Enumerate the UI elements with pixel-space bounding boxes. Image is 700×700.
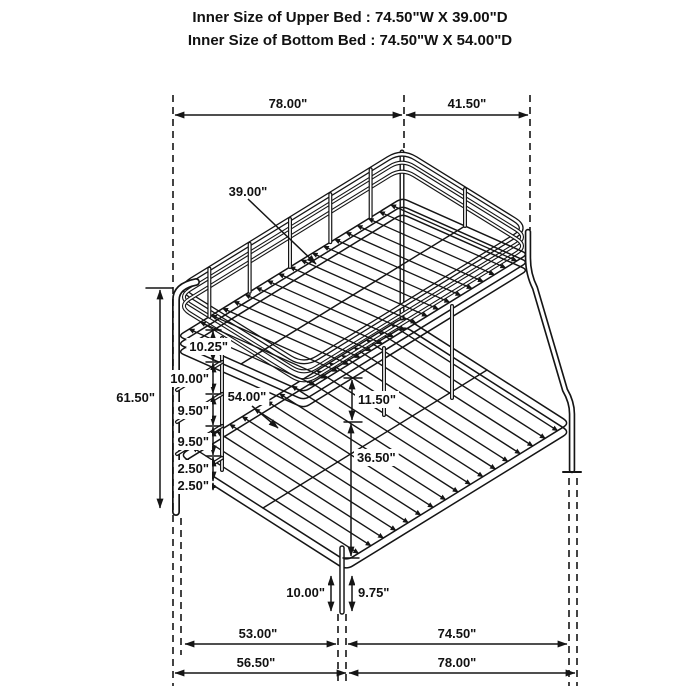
lower-bed-slat [317, 371, 483, 477]
upper-bed-slat [346, 233, 472, 289]
upper-bed-slat [279, 274, 405, 330]
lower-bed-slat [205, 440, 371, 546]
upper-bed-slat [335, 239, 461, 295]
diagram-canvas: Inner Size of Upper Bed : 74.50"W X 39.0… [0, 0, 700, 700]
dimension-labels-layer: 78.00"41.50"61.50"39.00"10.25"10.00"9.50… [116, 96, 486, 670]
lower-bed-slat [280, 394, 446, 500]
upper-bed-slat [256, 288, 382, 344]
dim-bottom-inner-depth: 53.00" [239, 626, 278, 641]
lower-bed-slat [267, 401, 433, 507]
lower-bed-slat [379, 332, 545, 438]
dim-bottom-outer-depth: 56.50" [237, 655, 276, 670]
upper-bed-slat [268, 281, 394, 337]
dim-ladder-space-4: 9.50" [178, 434, 209, 449]
dim-floor-clearance-left: 10.00" [286, 585, 325, 600]
dim-bottom-inner-width: 74.50" [438, 626, 477, 641]
lower-bed-slat [217, 432, 383, 538]
dim-lower-bed-depth: 54.00" [228, 389, 267, 404]
diagram-title-line1: Inner Size of Upper Bed : 74.50"W X 39.0… [192, 9, 507, 26]
upper-bed-slat [391, 205, 517, 261]
upper-bed-slat [290, 267, 416, 323]
bunk-bed-dimension-diagram: Inner Size of Upper Bed : 74.50"W X 39.0… [0, 0, 700, 700]
upper-bed-slat [301, 260, 427, 316]
dim-upper-bed-depth: 39.00" [229, 184, 268, 199]
dim-ladder-space-2: 10.00" [170, 371, 209, 386]
dim-bottom-outer-width: 78.00" [438, 655, 477, 670]
upper-bed-slat [234, 302, 360, 358]
dim-ladder-space-3: 9.50" [178, 403, 209, 418]
dim-ladder-space-5: 2.50" [178, 461, 209, 476]
dim-bunk-gap: 11.50" [358, 392, 396, 407]
dim-floor-clearance-right: 9.75" [358, 585, 389, 600]
lower-bed-slat [230, 424, 396, 530]
dim-overall-height: 61.50" [116, 390, 155, 405]
upper-bunk [181, 154, 581, 472]
lower-bed-slat [392, 325, 558, 431]
lower-bed-slat [242, 417, 408, 523]
diagram-title-line2: Inner Size of Bottom Bed : 74.50"W X 54.… [188, 32, 512, 49]
dim-lower-bed-height: 36.50" [357, 450, 396, 465]
lower-bed-slat [342, 355, 508, 461]
dim-top-depth: 41.50" [448, 96, 487, 111]
dim-top-width: 78.00" [269, 96, 308, 111]
dim-ladder-space-1: 10.25" [189, 339, 228, 354]
dim-ladder-space-6: 2.50" [178, 478, 209, 493]
upper-bed-slat [312, 253, 438, 309]
upper-bed-slat [324, 246, 450, 302]
